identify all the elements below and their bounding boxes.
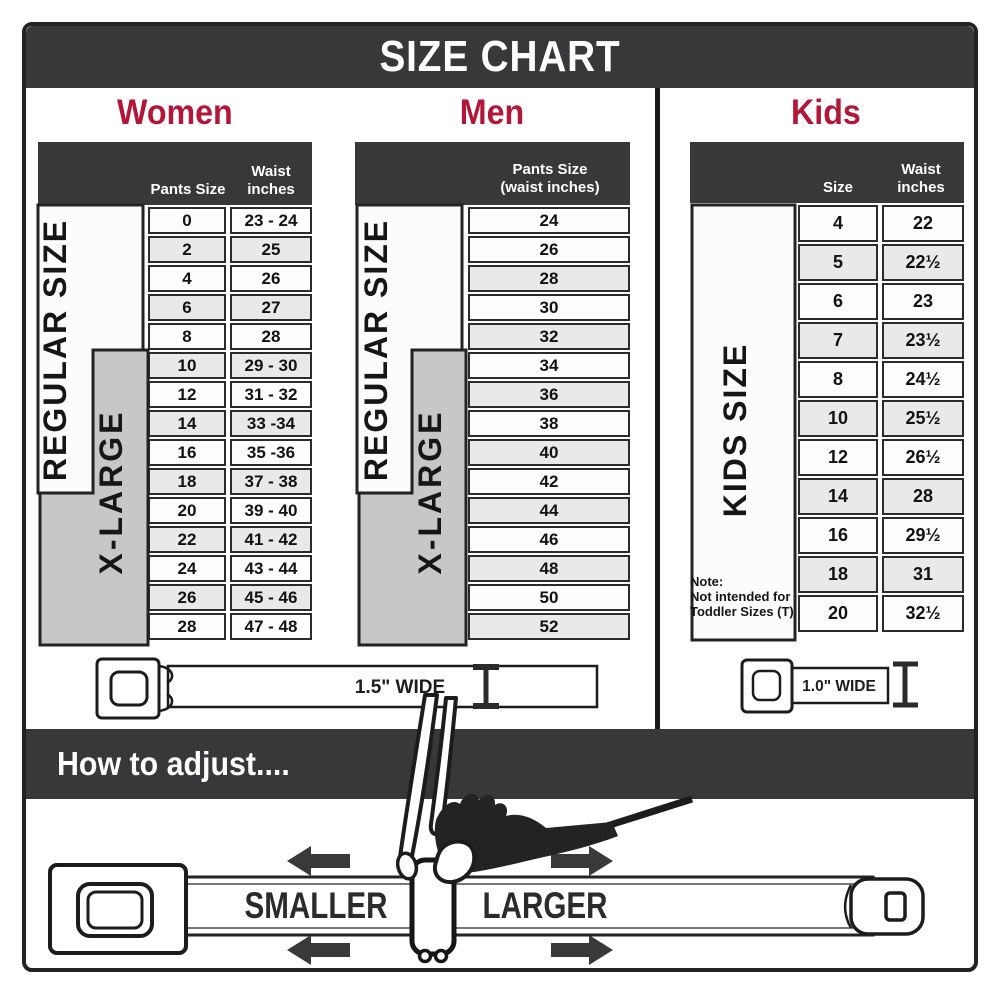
- men-regular-label: REGULAR SIZE: [358, 219, 394, 481]
- size-chart-infographic: REGULAR SIZE X-LARGE REGULAR SIZE X-LARG…: [0, 0, 1000, 1000]
- size-panels-layer: REGULAR SIZE X-LARGE REGULAR SIZE X-LARG…: [0, 0, 1000, 1000]
- women-xlarge-label: X-LARGE: [93, 410, 129, 575]
- kids-note-line2: Not intended for: [690, 589, 796, 604]
- kids-note-line1: Note:: [690, 574, 796, 589]
- kids-size-label: KIDS SIZE: [717, 343, 753, 517]
- kids-note-line3: Toddler Sizes (T): [690, 604, 796, 619]
- kids-note: Note: Not intended for Toddler Sizes (T): [690, 574, 796, 619]
- women-regular-label: REGULAR SIZE: [37, 219, 73, 481]
- men-xlarge-label: X-LARGE: [412, 410, 448, 575]
